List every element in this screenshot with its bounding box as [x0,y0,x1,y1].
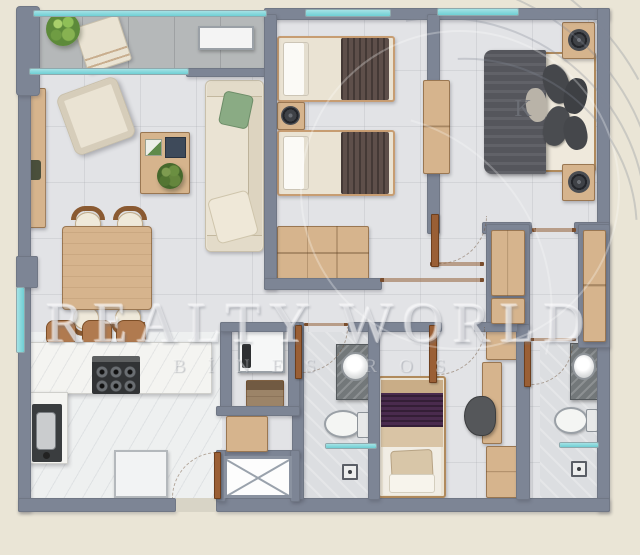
wardrobe-right-interior [583,230,606,342]
king-bed-label: K [508,96,538,126]
twin-dresser [277,226,369,280]
entrance-threshold [176,498,216,512]
twin-nightstand-lamp [281,106,300,125]
opening-hallway [380,278,484,282]
small-bed-pillow-white [389,474,435,493]
balcony-railing-glass [34,11,266,16]
book-green [145,139,162,156]
bath-right-shower-glass [560,443,598,447]
bath-center-shower-glass [326,444,376,448]
balcony-plant [46,12,80,46]
king-nightstand-lamp [568,29,590,51]
floor-plan-image: { "watermark": { "brand": "REALTY WORLD"… [0,0,640,521]
niche-shelf [226,416,268,452]
king-nightstand-lamp [568,171,590,193]
balcony-door-glass [30,69,188,74]
bedroom-dresser [486,446,518,498]
twin-bed-1-pillow [283,42,309,96]
closet-hall-wardrobe [491,230,525,296]
chair-back [71,206,105,220]
bedroom-door-leaf [429,325,437,383]
light-shaft [224,456,292,498]
wall-outer-bottom-right [216,498,610,512]
opening-bath-right [530,338,576,341]
wall-twin-king-upper [427,14,440,82]
window-king-bedroom [438,9,518,15]
bath-right-drain [571,461,587,477]
dining-table [62,226,152,310]
wall-balcony-divider [186,68,266,77]
cooktop [92,356,140,394]
king-door-leaf [431,214,439,267]
ac-unit [198,26,254,50]
builtin-wardrobe-twin-king [423,80,450,174]
bath-right-toilet [554,407,588,434]
wall-bedroom-top-left [348,322,442,332]
washer-door [242,344,251,368]
twin-bed-1-blanket [341,38,389,100]
bath-right-sink [572,353,596,380]
wall-outer-bottom-left [18,498,176,512]
bath-center-door-leaf [295,325,302,379]
sink-faucet [43,452,50,459]
opening-bath-center [304,323,348,326]
book-blue [165,137,186,158]
wall-living-twin [264,14,277,290]
wall-niche-top [216,406,300,416]
chair-back [113,206,147,220]
bath-center-sink [341,352,370,381]
wall-left-pier [16,256,38,288]
twin-bed-2-blanket [341,132,389,194]
closet-hall-drawers [491,298,525,324]
bath-right-door-leaf [524,341,531,387]
wall-balcony-pier [16,6,40,96]
small-bed-blanket [381,393,443,427]
bath-center-drain [342,464,358,480]
entrance-door-leaf [214,452,221,499]
small-bed-sheet [381,427,443,447]
wall-twin-bottom [264,278,382,290]
utility-shelf [246,380,284,407]
wall-bath-center-right [368,322,380,500]
washing-machine [238,328,285,373]
sink-bowl [36,412,56,450]
twin-bed-2-pillow [283,136,309,190]
wall-utility-left [220,322,232,412]
window-kitchen [17,288,24,352]
fridge [114,450,168,498]
window-twin-bedroom [306,10,390,16]
table-plant [157,163,183,189]
desk-chair [464,396,496,436]
kitchen-sink [32,404,62,462]
opening-dressing [532,228,576,232]
